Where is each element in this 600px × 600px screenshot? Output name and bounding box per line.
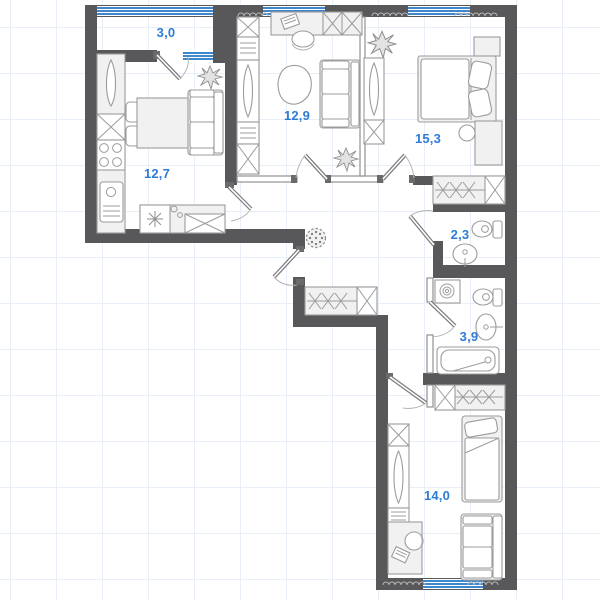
room-label-bedroom-2: 14,0: [424, 488, 450, 503]
plant-icon: [334, 148, 358, 171]
room-label-balcony: 3,0: [157, 25, 176, 40]
window-balcony-inner: [183, 51, 213, 61]
kitchen-sofa-icon: [188, 90, 223, 155]
toilet-icon: [472, 221, 502, 238]
washing-machine-icon: [435, 280, 460, 303]
desk-icon: [271, 12, 325, 50]
room-label-wc: 2,3: [451, 227, 470, 242]
toilet-icon: [473, 289, 502, 306]
kitchen-door: [225, 182, 251, 221]
living-shelf-column: [237, 17, 259, 174]
bedroom-1-hanger-wardrobe: [433, 176, 505, 204]
sink-icon: [476, 314, 503, 340]
living-sofa-icon: [320, 60, 360, 128]
room-label-bathroom: 3,9: [460, 329, 479, 344]
bedroom-2-door: [386, 373, 426, 408]
window-balcony: [97, 6, 213, 16]
wc-door: [410, 211, 434, 245]
stool-icon: [459, 125, 475, 141]
bedroom-1-wardrobe-column: [364, 58, 384, 144]
stove-icon: [97, 140, 125, 170]
floor-plan-canvas: 3,0 12,7 12,9 15,3 2,3 3,9 14,0: [0, 0, 600, 600]
desk-icon: [388, 522, 423, 574]
bathtub-icon: [437, 347, 499, 374]
bedroom-2-shelf-column: [388, 424, 409, 524]
single-bed-icon: [462, 416, 502, 502]
wardrobe-crossed-icon: [323, 12, 362, 35]
pouf-icon: [307, 229, 326, 248]
double-bed-icon: [418, 56, 496, 122]
plant-icon: [368, 31, 396, 57]
bedroom-2-hanger-wardrobe: [435, 385, 505, 410]
chair-icon: [292, 31, 314, 47]
floor-plan: 3,0 12,7 12,9 15,3 2,3 3,9 14,0: [0, 0, 600, 600]
sink-icon: [453, 244, 477, 267]
living-room-door: [296, 155, 327, 179]
rug-icon: [278, 66, 311, 105]
bedroom-2-sofa-icon: [461, 514, 502, 580]
nightstand-icon: [474, 37, 500, 56]
dining-table-icon: [126, 98, 189, 148]
room-label-bedroom-1: 15,3: [415, 131, 441, 146]
plant-icon: [198, 66, 222, 89]
room-label-kitchen-living: 12,7: [144, 166, 170, 181]
dresser-and-stool: [459, 121, 502, 165]
room-label-living-room: 12,9: [284, 108, 310, 123]
kitchen-corner-unit: [140, 205, 225, 233]
bathroom-door: [430, 302, 455, 337]
hallway-closet: [305, 287, 377, 315]
entrance-door: [274, 246, 304, 285]
kitchen-sink-icon: [100, 182, 123, 222]
hob-icon: [147, 211, 163, 227]
